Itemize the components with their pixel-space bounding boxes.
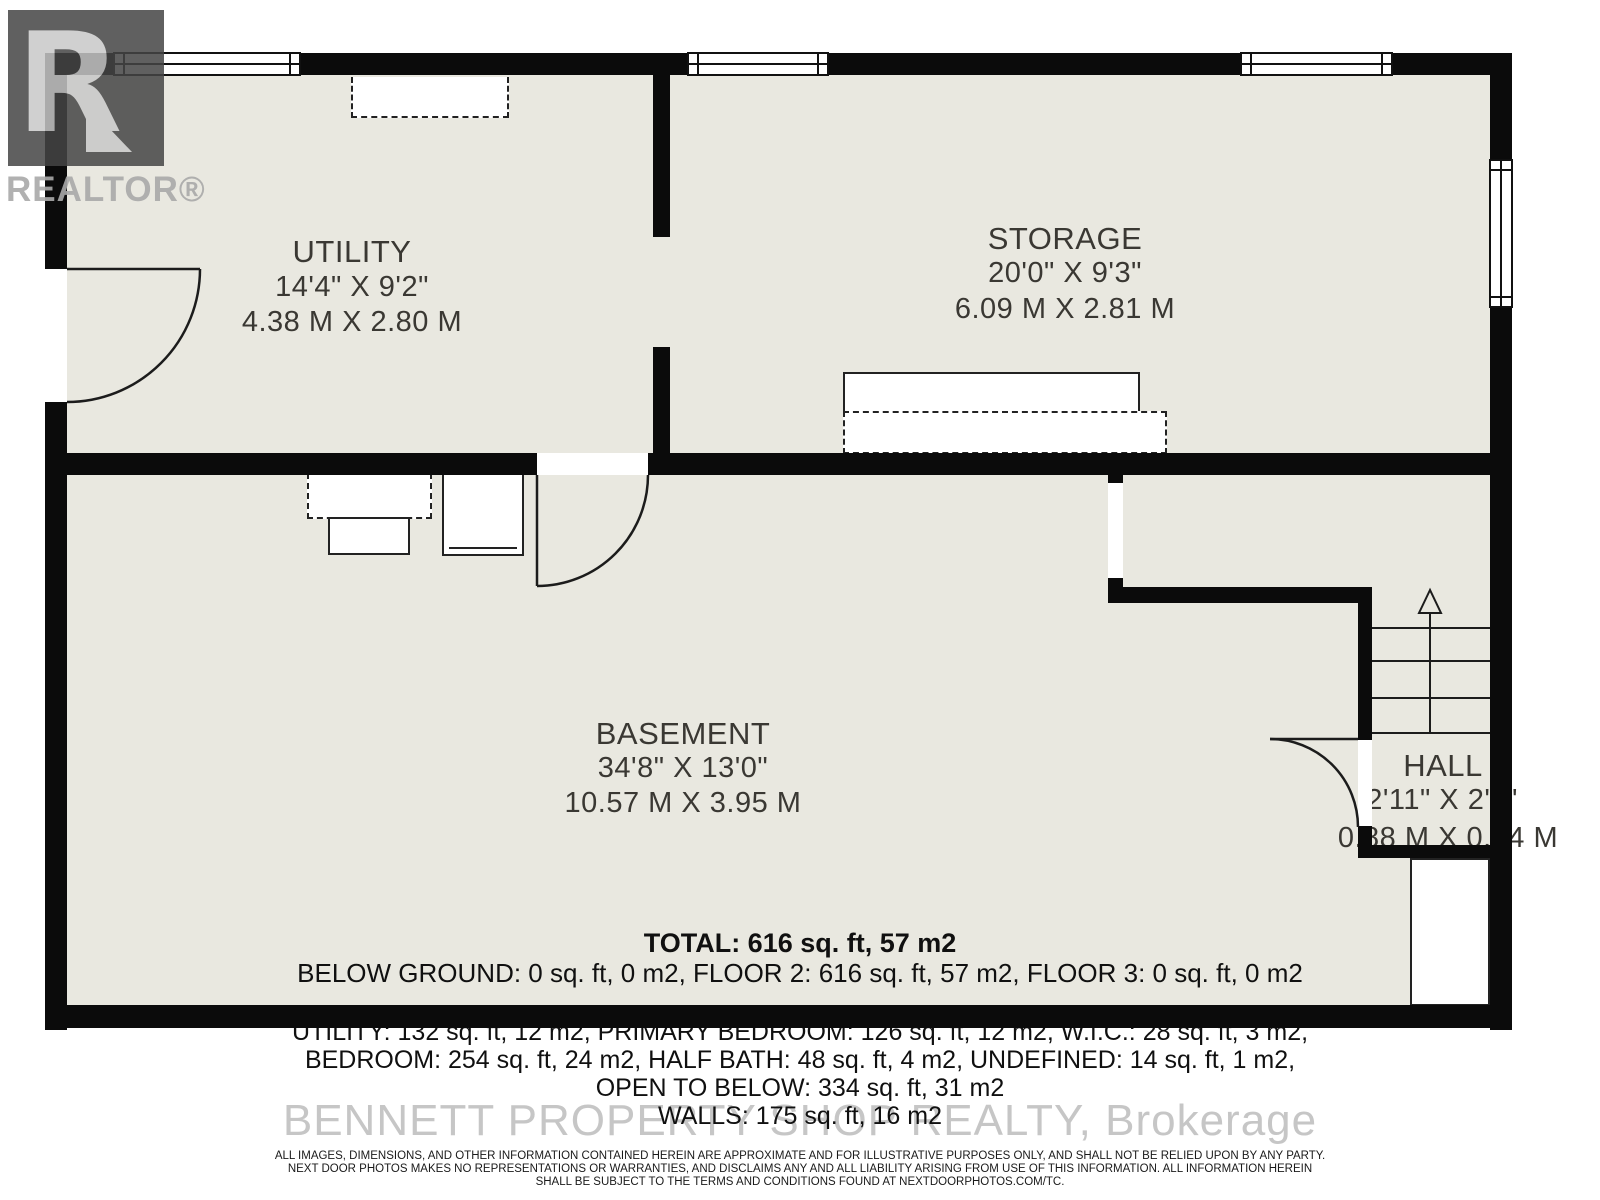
stairs-symbol <box>1372 590 1490 733</box>
floor-plan-page: UTILITY 14'4" X 9'2" 4.38 M X 2.80 M STO… <box>0 0 1600 1200</box>
stairs-up-arrow <box>1419 590 1441 613</box>
window-top-2 <box>688 53 828 75</box>
plan-symbols <box>0 0 1600 1200</box>
window-right <box>1490 160 1512 307</box>
door-openings <box>45 269 1372 826</box>
realtor-logo: R <box>8 10 164 171</box>
basement-door-opening <box>537 453 648 475</box>
realtor-wordmark: REALTOR® <box>6 170 196 210</box>
basement-door-swing <box>537 475 648 586</box>
hall-door-swing <box>1270 739 1358 827</box>
realtor-logo-mark: R <box>8 10 164 166</box>
corridor-door-opening <box>1108 483 1123 578</box>
window-symbols <box>114 53 1512 307</box>
utility-entry-door-swing <box>67 269 200 402</box>
window-top-3 <box>1241 53 1392 75</box>
hall-door-opening <box>1358 740 1372 826</box>
door-swings <box>67 269 1358 827</box>
left-door-opening <box>45 269 67 402</box>
